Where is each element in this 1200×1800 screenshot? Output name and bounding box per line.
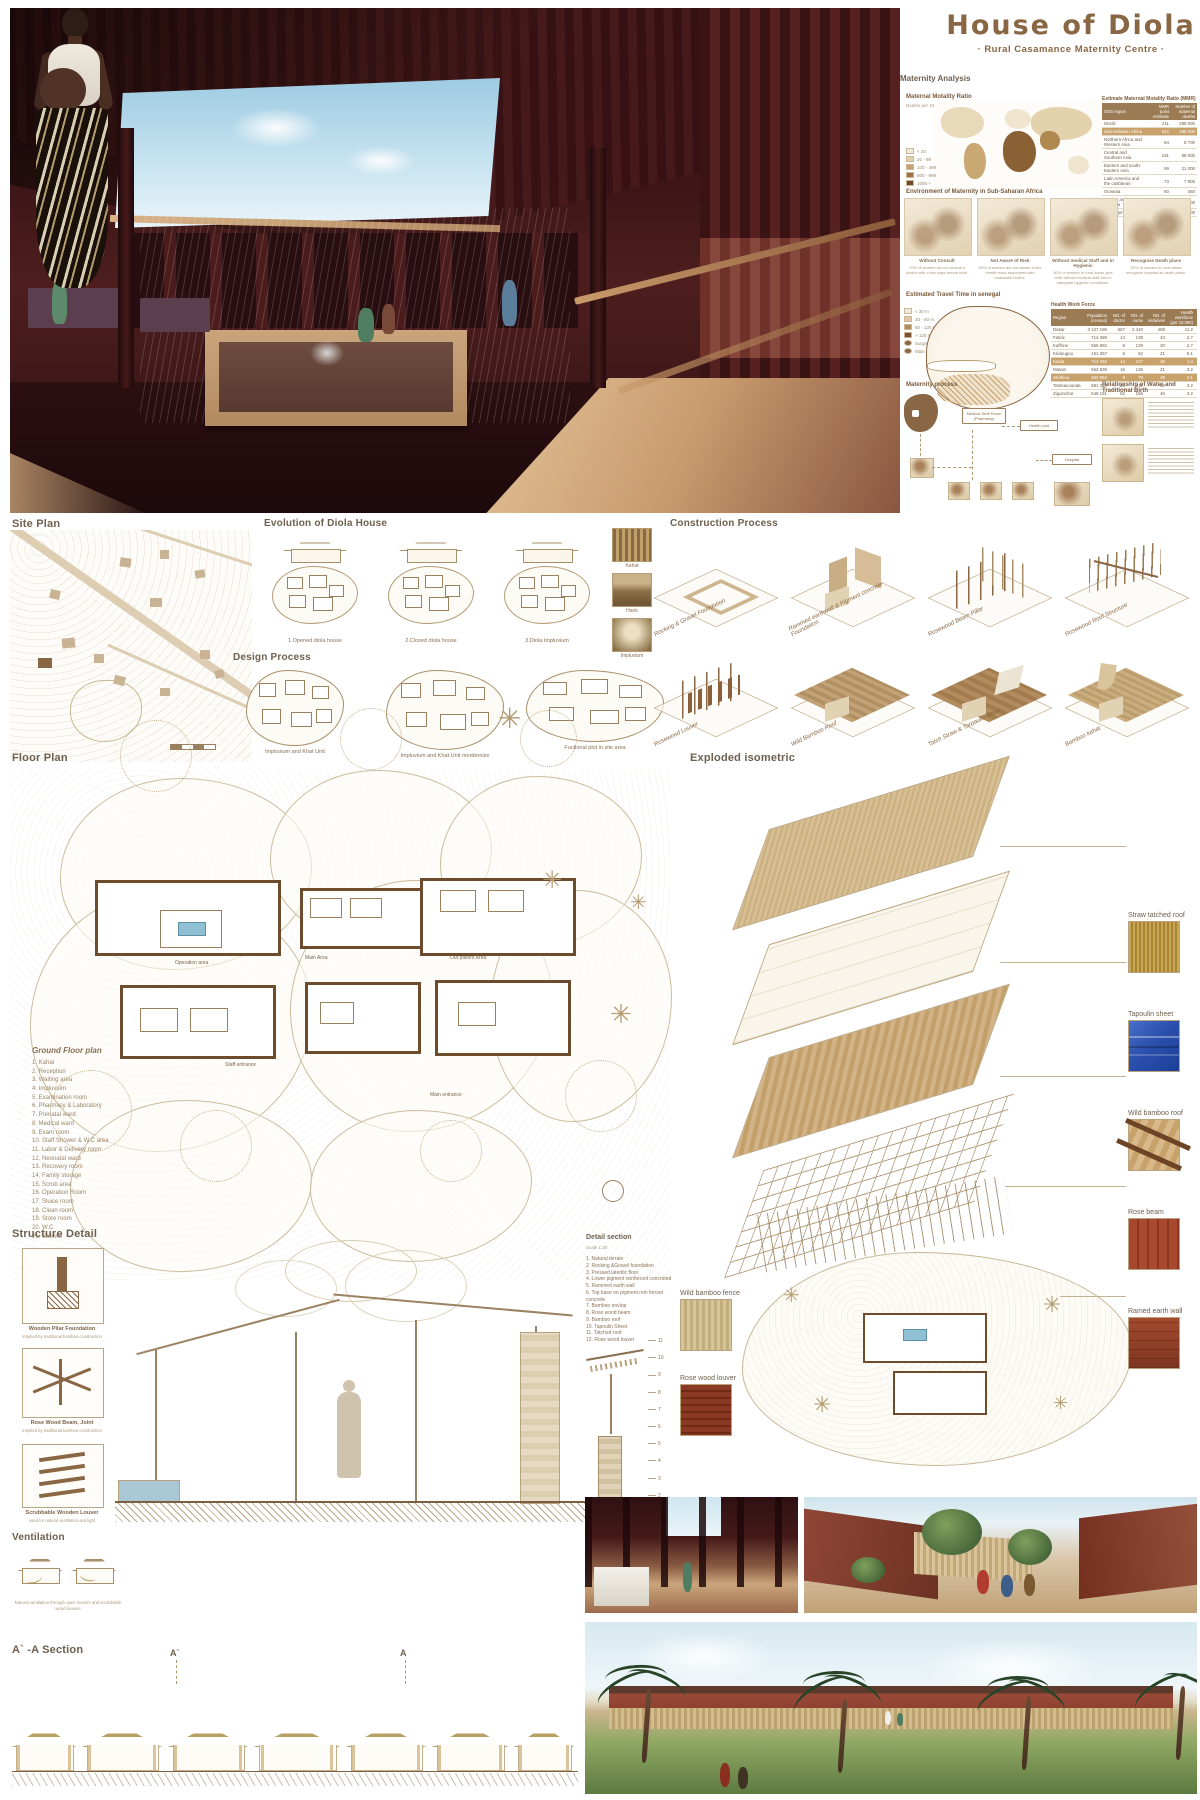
cloud: [346, 146, 416, 176]
legend-entry: 1. Kahal: [32, 1059, 162, 1068]
cell-nurse: 62: [1127, 350, 1145, 357]
exploded-heading: Exploded isometric: [690, 752, 795, 764]
earth-wall-right: [1079, 1504, 1197, 1600]
post: [417, 1745, 420, 1770]
detail-item: 11. Tatched roof: [586, 1330, 676, 1337]
design-diagram: [246, 670, 344, 746]
detail-box-joint: [22, 1348, 104, 1418]
ground-hatch: [115, 1502, 585, 1522]
room-sketch: [403, 577, 419, 589]
building-footprint: [200, 650, 210, 659]
palm-tree-icon: ✳: [610, 1000, 632, 1030]
photo-label: Impluvium: [612, 653, 652, 659]
plan-annotation: Staff entrance: [225, 1062, 256, 1068]
col-hw: Health workforce (per 10 000): [1167, 309, 1195, 326]
walls: [87, 1745, 159, 1771]
cell-pop: 714 392: [1077, 358, 1109, 365]
cell-deaths: 196 000: [1171, 128, 1197, 135]
post: [261, 1745, 264, 1770]
legend-entry: 19. Store room: [32, 1215, 162, 1224]
cell-deaths: 58 000: [1171, 152, 1197, 159]
legend-entry: 2. Reception: [32, 1068, 162, 1077]
cell-region: Oceania: [1102, 188, 1147, 195]
unit-sketch: [543, 682, 567, 695]
environment-card: Without Consult 70% of women do not cons…: [904, 198, 970, 286]
cell-doc: 16: [1109, 366, 1127, 373]
birth-attendant-icon: [948, 482, 970, 500]
cell-region: Eastern and south-Eastern Asia: [1102, 162, 1147, 174]
mmr-table-header: SDG region MMR point estimate Number of …: [1102, 103, 1197, 120]
plan-pool: [903, 1329, 927, 1341]
environment-illustrations: Without Consult 70% of women do not cons…: [904, 198, 1196, 286]
cell-deaths: 460: [1171, 188, 1197, 195]
photo-label: Hank: [612, 608, 652, 614]
tree: [520, 710, 577, 767]
post: [330, 1745, 333, 1770]
cell-doc: 14: [1109, 358, 1127, 365]
louver-slat: [39, 1464, 85, 1474]
cell-pop: 3 137 196: [1077, 326, 1109, 333]
cell-doc: 667: [1109, 326, 1127, 333]
marker-dot: [904, 340, 912, 346]
col-pop: Population (census): [1077, 312, 1109, 324]
cell-mmr: 542: [1147, 128, 1171, 135]
section-module: [82, 1726, 162, 1770]
table-row: Kédougou 151 357 6 62 21 5.1: [1051, 350, 1197, 358]
cell-region: Tambacounda: [1051, 382, 1077, 389]
material-photo: [1128, 921, 1180, 973]
unit-sketch: [619, 685, 641, 698]
legend-entry: 15. Scrub area: [32, 1181, 162, 1190]
room: [140, 1008, 178, 1032]
detail-note: Inspried by traditional bamboo construct…: [12, 1428, 112, 1433]
legend-item: 1000 +: [906, 180, 936, 186]
water-title: Relationship of Water and Traditional Bi…: [1102, 382, 1196, 394]
unit-sketch: [471, 712, 489, 726]
illustration-note: 30% of women are not aware of the Health…: [977, 265, 1043, 281]
plan-annotation: Out patient Area: [450, 955, 486, 961]
continent-australia: [1068, 156, 1088, 174]
foundation-sketch: [47, 1291, 79, 1309]
legend-title: Ground Floor plan: [32, 1046, 162, 1055]
material-label: Rose beam: [1128, 1209, 1185, 1216]
cell-mmr: 69: [1147, 165, 1171, 172]
cell-mid: 458: [1145, 326, 1167, 333]
cell-mmr: 73: [1147, 178, 1171, 185]
hut-elevation-sketch: [515, 536, 579, 562]
material-item: Ramed earth wall: [1128, 1308, 1185, 1369]
cell-hw: 2.1: [1167, 374, 1195, 381]
figure-belly: [40, 68, 86, 112]
legend-swatch: [904, 324, 912, 330]
legend-entry: 7. Prenatal ward: [32, 1111, 162, 1120]
cell-region: Matam: [1051, 366, 1077, 373]
legend-swatch: [906, 164, 914, 170]
reference-photo: [612, 528, 652, 562]
design-stage: Impluvium and Khat Unit: [240, 670, 350, 755]
material-label: Tapoulin sheet: [1128, 1011, 1185, 1018]
post: [68, 1745, 71, 1770]
legend-entry: 8. Medical ward: [32, 1120, 162, 1129]
cell-doc: 9: [1109, 374, 1127, 381]
continent-africa: [1003, 131, 1037, 172]
legend-label: 500 - 999: [917, 173, 936, 178]
callout-number: 3: [648, 1476, 664, 1482]
detail-box-pillar: [22, 1248, 104, 1324]
detail-section-scale: Scale 1:30: [586, 1245, 607, 1250]
figure-green: [683, 1562, 692, 1592]
cell-mid: 20: [1145, 342, 1167, 349]
section-module: [254, 1726, 340, 1770]
stage-label: 2.Closed diola house: [378, 638, 484, 644]
material-item: Rose beam: [1128, 1209, 1185, 1270]
legend-list: 1. Kahal2. Reception3. Waiting area4. Im…: [32, 1059, 162, 1241]
table-row: Dakar 3 137 196 667 2 410 458 11.2: [1051, 326, 1197, 334]
palm-tree-icon: ✳: [1043, 1293, 1061, 1318]
cell-pop: 452 994: [1077, 374, 1109, 381]
woman-with-basket: [720, 1763, 730, 1787]
bamboo-layer: [590, 1358, 638, 1372]
building-footprint: [160, 550, 169, 559]
ward-bed: [28, 288, 128, 328]
palm-tree-icon: ✳: [630, 890, 647, 914]
unit-sketch: [259, 683, 276, 697]
legend-item: < 20: [906, 148, 936, 154]
building-footprint: [194, 569, 205, 579]
flow-connector: [932, 467, 972, 468]
section-module: [514, 1726, 574, 1770]
water-illustration-2: [1102, 444, 1144, 482]
detail-item: 9. Bamboo roof: [586, 1317, 676, 1324]
plan-annotation: Main Area: [305, 955, 328, 961]
illustration-caption: Not Aware of Risk: [977, 258, 1043, 263]
legend-entry: 13. Recovery room: [32, 1163, 162, 1172]
material-photo: [680, 1384, 732, 1436]
building-footprint: [150, 598, 162, 607]
timber-post: [118, 128, 134, 388]
roof: [514, 1726, 574, 1747]
cell-mid: 21: [1145, 350, 1167, 357]
cell-doc: 14: [1109, 334, 1127, 341]
flow-connector: [920, 434, 921, 456]
palm-tree-icon: ✳: [783, 1283, 800, 1307]
patterned-skirt: [36, 108, 108, 288]
caption-lines: [1148, 448, 1194, 474]
table-row: Fatick 714 389 14 138 34 2.7: [1051, 334, 1197, 342]
woman-with-basket: [738, 1767, 748, 1789]
unit-sketch: [433, 680, 456, 696]
cell-region: Fatick: [1051, 334, 1077, 341]
construction-step: Wild Bamboo Roof: [785, 644, 922, 754]
material-photo: [1128, 1119, 1180, 1171]
marker-dot: [904, 348, 912, 354]
col-nurse: NO. of nurse: [1127, 312, 1145, 324]
palm-sketch: [345, 1250, 467, 1322]
cell-deaths: 295 000: [1171, 120, 1197, 127]
plan-sketch: [504, 566, 590, 624]
leader-line: [1000, 846, 1126, 847]
section-module: [432, 1726, 508, 1770]
reference-photo: [612, 573, 652, 607]
render-interior-corridor: [585, 1497, 798, 1613]
detail-item: 7. Bamboo envlop: [586, 1303, 676, 1310]
material-photo: [1128, 1020, 1180, 1072]
figure-visitor-blue: [502, 280, 517, 326]
render-exterior-path: [804, 1497, 1197, 1613]
roof: [254, 1726, 340, 1747]
cell-pop: 151 357: [1077, 350, 1109, 357]
plan-annotation: Main entrance: [430, 1092, 462, 1098]
legend-entry: 11. Labor & Delivery room: [32, 1146, 162, 1155]
post: [88, 1745, 91, 1770]
environment-card: Recognize Death place 20% of women in ru…: [1123, 198, 1189, 286]
palm-trunk: [642, 1689, 652, 1763]
room-sketch: [545, 597, 565, 611]
design-process-row: Impluvium and Khat Unit Impluvium and Kh…: [230, 670, 670, 762]
photo-label: Kahat: [612, 563, 652, 569]
unit-sketch: [406, 712, 428, 727]
room: [440, 890, 476, 912]
stage-label: Impluvium and Khat Unit: [240, 749, 350, 755]
legend-label: < 30 m: [915, 309, 929, 314]
reference-photo: [612, 618, 652, 652]
table-row: Sédhiou 452 994 9 79 28 2.1: [1051, 374, 1197, 382]
louver-slat: [39, 1452, 85, 1462]
presentation-board: House of Diola · Rural Casamance Materni…: [0, 0, 1200, 1800]
pillar-sketch: [57, 1257, 67, 1291]
room-sketch: [329, 585, 344, 597]
col-region: SDG region: [1102, 108, 1147, 115]
cell-mid: 28: [1145, 374, 1167, 381]
cell-region: Kaffrine: [1051, 342, 1077, 349]
section-marker-a1: A`: [170, 1648, 180, 1658]
detail-item: 8. Rose wood beam: [586, 1310, 676, 1317]
illustration-caption: Recognize Death place: [1123, 258, 1189, 263]
table-row: Sub-Saharan Africa 542 196 000: [1102, 128, 1197, 136]
region-south-asia: [1040, 131, 1060, 151]
detail-item: 3. Pressed lateritic floor: [586, 1270, 676, 1277]
walls: [173, 1745, 245, 1771]
col-region: Region: [1051, 314, 1077, 321]
legend-label: 100 - 499: [917, 165, 936, 170]
unit-sketch: [312, 686, 328, 699]
cell-mmr: 211: [1147, 120, 1171, 127]
site-plan-heading: Site Plan: [12, 518, 60, 530]
room-sketch: [309, 575, 327, 588]
detail-section-heading: Detail section: [586, 1234, 632, 1241]
post: [153, 1745, 156, 1770]
cell-nurse: 138: [1127, 334, 1145, 341]
cell-doc: 8: [1109, 342, 1127, 349]
evolution-heading: Evolution of Diola House: [264, 518, 387, 529]
tree: [565, 1060, 637, 1132]
unit-sketch: [285, 680, 304, 695]
cell-mid: 34: [1145, 334, 1167, 341]
legend-label: 30 - 60 m: [915, 317, 934, 322]
environment-card: Without medical Staff and in Hygienic 60…: [1050, 198, 1116, 286]
room-sketch: [425, 575, 443, 588]
cell-mmr: 151: [1147, 152, 1171, 159]
post: [352, 1745, 355, 1770]
project-site-marker: [38, 658, 52, 668]
leader-line: [1000, 1076, 1126, 1077]
callout-number: 9: [648, 1372, 664, 1378]
cloud: [231, 108, 321, 148]
palm-tree: [609, 1643, 679, 1763]
walls: [259, 1745, 337, 1771]
legend-entry: 12. Neonatal ward: [32, 1155, 162, 1164]
ground-line: [115, 1501, 585, 1503]
evolution-stage: 1.Opened diola house: [262, 532, 368, 644]
palm-tree-icon: ✳: [813, 1393, 831, 1418]
legend-entry: 4. Impluvium: [32, 1085, 162, 1094]
room-sketch: [313, 597, 333, 611]
water-splash: [310, 340, 344, 366]
palm-tree: [989, 1652, 1059, 1770]
table-row: Central and Southern Asia 151 58 000: [1102, 149, 1197, 162]
table-row: Kolda 714 392 14 127 35 1.4: [1051, 358, 1197, 366]
detail-item: 2. Rocking &Gravel foundation: [586, 1263, 676, 1270]
detail-note: Inspried by traditional bamboo construct…: [12, 1334, 112, 1339]
legend-swatch: [906, 180, 914, 186]
room-sketch: [521, 595, 538, 608]
sepia-illustration: [1123, 198, 1191, 256]
column-line: [415, 1320, 417, 1502]
roof: [346, 1726, 426, 1747]
callout-number: 4: [648, 1458, 664, 1464]
aa-section-heading: A` -A Section: [12, 1644, 83, 1656]
photo-item: Hank: [612, 573, 652, 614]
material-label: Ramed earth wall: [1128, 1308, 1185, 1315]
detail-strip-drawing: [586, 1340, 646, 1520]
white-cabinet: [594, 1567, 649, 1606]
tree: [340, 708, 402, 770]
material-item: Tapoulin sheet: [1128, 1011, 1185, 1072]
illustration-caption: Without Consult: [904, 258, 970, 263]
woven-fence: [609, 1708, 1172, 1729]
legend-label: 20 - 99: [917, 157, 931, 162]
world-map-mmr: [934, 100, 1102, 190]
poster-subtitle: · Rural Casamance Maternity Centre ·: [946, 44, 1196, 55]
rammed-earth-wall-section: [520, 1332, 560, 1504]
detail-box-louver: [22, 1444, 104, 1508]
maternity-analysis-heading: Maternity Analysis: [900, 74, 970, 83]
timber-post: [590, 148, 606, 388]
evolution-stage: 2.Closed diola house: [378, 532, 484, 644]
table-row: Oceania 60 460: [1102, 188, 1197, 196]
legend-entry: 10. Staff Shower & W.C area: [32, 1137, 162, 1146]
building-section-drawing: [115, 1240, 585, 1530]
plan-annotation: Operation area: [175, 960, 208, 966]
hut-elevation-sketch: [399, 536, 463, 562]
structure-detail-heading: Structure Detail: [12, 1228, 97, 1240]
cell-region: Northern Africa and Western Asia: [1102, 136, 1147, 148]
plant: [922, 1509, 982, 1555]
cell-region: Central and Southern Asia: [1102, 149, 1147, 161]
stage-label: 3.Diola Impluvium: [494, 638, 600, 644]
post: [499, 1745, 502, 1770]
hut-body-sketch: [407, 549, 457, 563]
louver-slat: [39, 1488, 85, 1498]
cell-region: World: [1102, 120, 1147, 127]
figure-head: [62, 8, 88, 38]
evolution-photos: Kahat Hank Impluvium: [612, 528, 652, 663]
roof-slope: [136, 1299, 339, 1355]
room: [190, 1008, 228, 1032]
table-row: Latin America and the caribbean 73 7 800: [1102, 175, 1197, 188]
cell-hw: 5.1: [1167, 350, 1195, 357]
evolution-stage: 3.Diola Impluvium: [494, 532, 600, 644]
cell-mmr: 84: [1147, 139, 1171, 146]
room: [458, 1002, 496, 1026]
walls: [518, 1745, 573, 1771]
room-sketch: [405, 595, 422, 608]
home-icon: [910, 458, 934, 478]
cell-hw: 2.7: [1167, 342, 1195, 349]
impluvium-pool: [205, 330, 467, 426]
detail-caption: Rose Wood Beam, Joint: [12, 1420, 112, 1426]
construction-step: Rosewood Louver: [648, 644, 785, 754]
table-row: Eastern and south-Eastern Asia 69 21 000: [1102, 162, 1197, 175]
legend-swatch: [904, 308, 912, 314]
illustration-note: 70% of women do not consult a doctor wit…: [904, 265, 970, 275]
callout-number: 5: [648, 1441, 664, 1447]
post: [438, 1745, 441, 1770]
sepia-illustration: [1050, 198, 1118, 256]
palm-trunk: [838, 1699, 848, 1773]
legend-entry: 18. Clean room: [32, 1207, 162, 1216]
plan-sketch: [388, 566, 474, 624]
construction-step: Rocking & Gravel Foundation: [648, 534, 785, 644]
material-label: Wild bamboo fence: [680, 1290, 740, 1297]
courtyard-pool: [178, 922, 206, 936]
material-labels-left: Wild bamboo fence Rose wood louver: [680, 1290, 740, 1460]
illustration-note: 60% of women in rural areas give birth w…: [1050, 270, 1116, 286]
material-item: Wild bamboo roof: [1128, 1110, 1185, 1171]
building-footprint: [119, 557, 131, 567]
sepia-illustration: [904, 198, 972, 256]
detail-item: 10. Tapoulin Sheet: [586, 1324, 676, 1331]
section-module: [346, 1726, 426, 1770]
photo-item: Impluvium: [612, 618, 652, 659]
maternity-process-flow: Medical Stuff Room (Pharmacy) Health pos…: [902, 390, 1098, 516]
sepia-illustration: [977, 198, 1045, 256]
environment-card: Not Aware of Risk 30% of women are not a…: [977, 198, 1043, 286]
col-deaths: Number of maternal deaths: [1171, 103, 1197, 120]
detail-item: 4. Lower pigment reinforced concreted: [586, 1276, 676, 1283]
seated-figure: [1001, 1575, 1013, 1597]
unit-sketch: [262, 709, 280, 724]
illustration-caption: Without medical Staff and in Hygienic: [1050, 258, 1116, 268]
legend-entry: 9. Exam room: [32, 1129, 162, 1138]
leader-line: [1060, 1296, 1126, 1297]
construction-steps: Rocking & Gravel Foundation Rammed earth…: [648, 534, 1200, 754]
workforce-header: Region Population (census) NO. of doctor…: [1051, 309, 1197, 326]
legend-label: < 20: [917, 149, 926, 154]
cell-deaths: 8 700: [1171, 139, 1197, 146]
legend-item: 20 - 99: [906, 156, 936, 162]
legend-entry: 6. Pharmacy & Laboratory: [32, 1102, 162, 1111]
north-arrow: [602, 1180, 624, 1202]
detail-caption: Wooden Pilar Foundation: [12, 1326, 112, 1332]
roof: [82, 1726, 162, 1747]
cell-pop: 566 992: [1077, 342, 1109, 349]
detail-note: used for natural ventilation and light: [12, 1518, 112, 1523]
room-sketch: [541, 575, 559, 588]
roof: [432, 1726, 508, 1747]
legend-swatch: [904, 332, 912, 338]
unit-sketch: [625, 707, 646, 720]
